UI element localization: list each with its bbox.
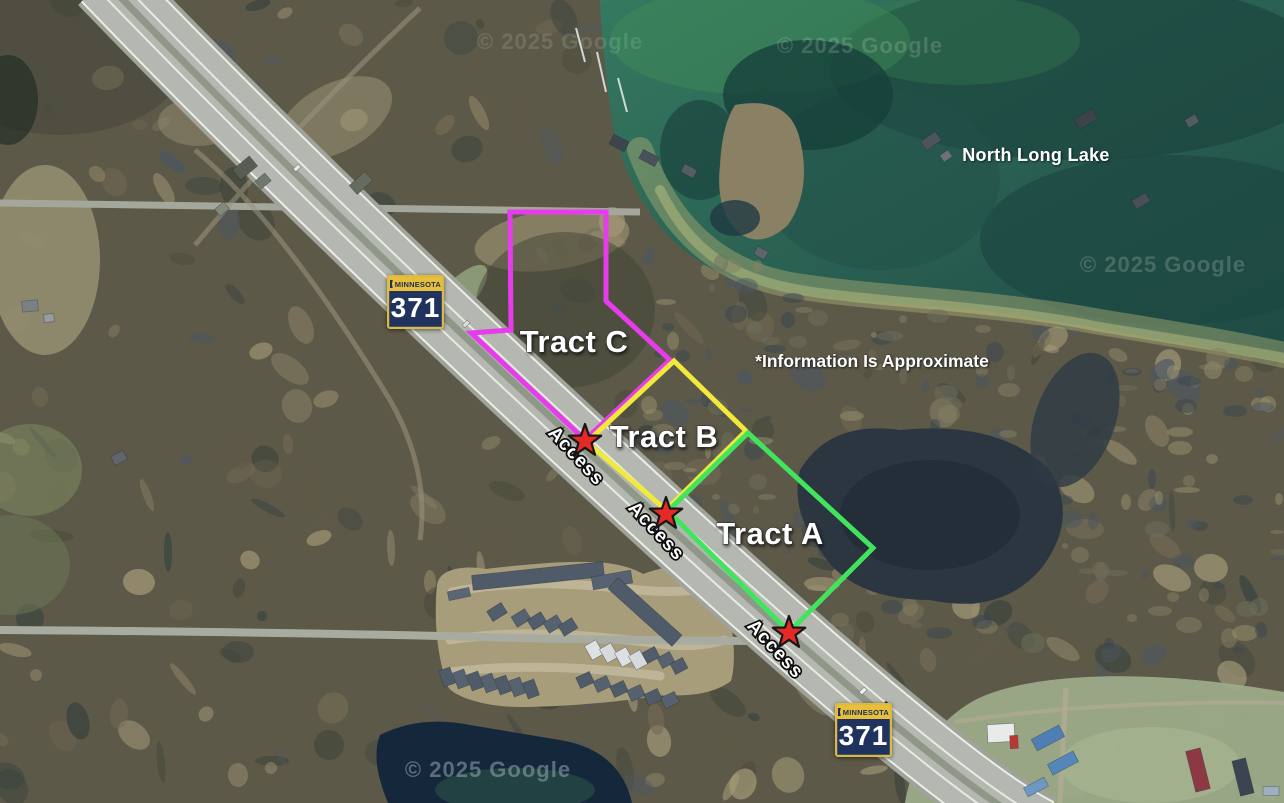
minnesota-flag-icon — [390, 280, 393, 288]
annotation-overlay: Tract CTract BTract AAccessAccessAccessN… — [0, 0, 1284, 803]
shield-state-band: MINNESOTA — [837, 705, 890, 719]
shield-state-label: MINNESOTA — [395, 280, 441, 289]
tract-c-label: Tract C — [520, 324, 629, 359]
shield-state-band: MINNESOTA — [389, 277, 442, 291]
minnesota-flag-icon — [838, 708, 841, 716]
lake-name-label: North Long Lake — [962, 145, 1110, 165]
map-canvas: Tract CTract BTract AAccessAccessAccessN… — [0, 0, 1284, 803]
google-watermark: © 2025 Google — [1080, 252, 1246, 277]
shield-state-label: MINNESOTA — [843, 708, 889, 717]
route-shield-mn-371: MINNESOTA371 — [835, 703, 892, 757]
google-watermark: © 2025 Google — [777, 33, 943, 58]
tract-a-label: Tract A — [716, 516, 823, 551]
disclaimer-label: *Information Is Approximate — [755, 351, 989, 371]
google-watermark: © 2025 Google — [477, 29, 643, 54]
google-watermark: © 2025 Google — [405, 757, 571, 782]
route-shield-mn-371: MINNESOTA371 — [387, 275, 444, 329]
shield-route-number: 371 — [389, 291, 442, 327]
shield-route-number: 371 — [837, 719, 890, 755]
tract-b-label: Tract B — [610, 419, 719, 454]
